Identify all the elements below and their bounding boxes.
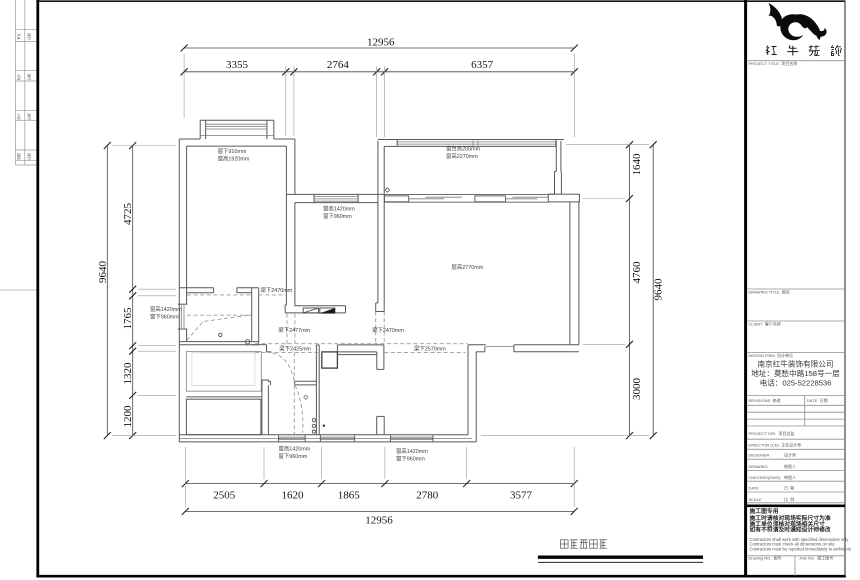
svg-text:DATE: DATE (749, 486, 760, 491)
svg-text:窗下960mm: 窗下960mm (150, 313, 179, 321)
svg-text:9640: 9640 (653, 278, 665, 301)
svg-text:PROJECT TITLE 项目名称: PROJECT TITLE 项目名称 (749, 60, 798, 66)
svg-text:窗下960mm: 窗下960mm (396, 455, 425, 463)
svg-text:SCALE: SCALE (749, 497, 762, 502)
svg-text:1865: 1865 (338, 490, 361, 502)
svg-text:1765: 1765 (122, 307, 134, 330)
svg-text:2505: 2505 (213, 490, 236, 502)
svg-text:窗高2270mm: 窗高2270mm (446, 152, 478, 160)
svg-text:3355: 3355 (226, 59, 249, 71)
svg-text:电话：025-52228536: 电话：025-52228536 (760, 378, 832, 388)
svg-text:DATE 日期: DATE 日期 (807, 397, 828, 403)
svg-text:PROJECT DIR. 项目总监: PROJECT DIR. 项目总监 (749, 430, 795, 436)
svg-text:梁下2470mm: 梁下2470mm (261, 286, 293, 294)
svg-text:梁下2425mm: 梁下2425mm (279, 344, 311, 352)
svg-text:设计: 设计 (16, 113, 21, 120)
svg-text:日期: 日期 (27, 74, 32, 80)
svg-text:制图人: 制图人 (784, 463, 796, 469)
svg-text:CLIENT 客户名称: CLIENT 客户名称 (749, 321, 781, 327)
svg-text:1640: 1640 (631, 153, 643, 176)
svg-text:4725: 4725 (122, 203, 134, 226)
svg-text:设计师: 设计师 (784, 452, 796, 458)
svg-text:校对: 校对 (16, 73, 21, 80)
svg-text:JOB NO. 施工图号: JOB NO. 施工图号 (799, 554, 833, 560)
svg-text:4760: 4760 (631, 261, 643, 284)
svg-text:CHECKED(DWG): CHECKED(DWG) (749, 475, 782, 480)
svg-text:梁下2470mm: 梁下2470mm (372, 326, 404, 334)
svg-text:1320: 1320 (122, 362, 134, 385)
svg-text:窗台高200mm: 窗台高200mm (446, 145, 481, 153)
svg-text:审定: 审定 (16, 33, 21, 40)
svg-text:Contractors must be reported i: Contractors must be reported immediately… (750, 547, 852, 552)
svg-text:1620: 1620 (282, 490, 305, 502)
svg-text:日期: 日期 (27, 33, 32, 39)
svg-text:地址：莫愁中路158号一层: 地址：莫愁中路158号一层 (751, 368, 840, 378)
svg-text:如有不符请及时通知设计师修改: 如有不符请及时通知设计师修改 (750, 526, 831, 534)
svg-text:2780: 2780 (416, 490, 439, 502)
svg-text:日 期: 日 期 (784, 485, 794, 491)
svg-text:梁下2570mm: 梁下2570mm (414, 344, 446, 352)
svg-text:REVISIONS 修改: REVISIONS 修改 (749, 397, 781, 403)
svg-text:DESIGN FIRM 设计单位: DESIGN FIRM 设计单位 (749, 352, 793, 358)
svg-text:窗高1420mm: 窗高1420mm (323, 205, 355, 213)
svg-text:DRAWING TITLE 图名: DRAWING TITLE 图名 (749, 289, 790, 295)
svg-text:12956: 12956 (367, 36, 395, 48)
svg-text:窗高1420mm: 窗高1420mm (150, 305, 182, 313)
svg-text:DRAWING: DRAWING (749, 464, 768, 469)
svg-text:2764: 2764 (327, 59, 350, 71)
svg-text:Drawing NO. 图号: Drawing NO. 图号 (749, 554, 782, 560)
svg-text:窗下910mm: 窗下910mm (218, 147, 247, 155)
svg-text:日期: 日期 (27, 114, 32, 120)
svg-text:1200: 1200 (122, 405, 134, 428)
svg-text:梁下2477mm: 梁下2477mm (278, 326, 310, 334)
svg-text:窗下960mm: 窗下960mm (323, 212, 352, 220)
svg-text:6357: 6357 (471, 59, 494, 71)
svg-text:3577: 3577 (510, 490, 533, 502)
svg-text:DIRECTOR (CD) 主任设计师: DIRECTOR (CD) 主任设计师 (749, 442, 802, 448)
svg-text:窗高1420mm: 窗高1420mm (396, 447, 428, 455)
svg-text:9640: 9640 (97, 261, 109, 284)
svg-text:日期: 日期 (27, 153, 32, 159)
svg-text:12956: 12956 (365, 515, 393, 527)
svg-text:施工时请核对现场实际尺寸为准: 施工时请核对现场实际尺寸为准 (750, 514, 831, 522)
svg-text:3000: 3000 (631, 378, 643, 401)
svg-text:窗高1920mm: 窗高1920mm (218, 154, 250, 162)
svg-text:窗高1420mm: 窗高1420mm (279, 445, 311, 453)
svg-text:制图: 制图 (16, 153, 21, 159)
svg-text:审图人: 审图人 (784, 474, 796, 480)
svg-text:南京红牛装饰有限公司: 南京红牛装饰有限公司 (758, 359, 834, 369)
svg-text:施工图专用: 施工图专用 (750, 507, 779, 515)
svg-text:DESIGNER: DESIGNER (749, 453, 770, 458)
svg-text:窗下960mm: 窗下960mm (279, 452, 308, 460)
svg-text:比 例: 比 例 (784, 496, 794, 502)
svg-text:层高2770mm: 层高2770mm (452, 263, 484, 271)
